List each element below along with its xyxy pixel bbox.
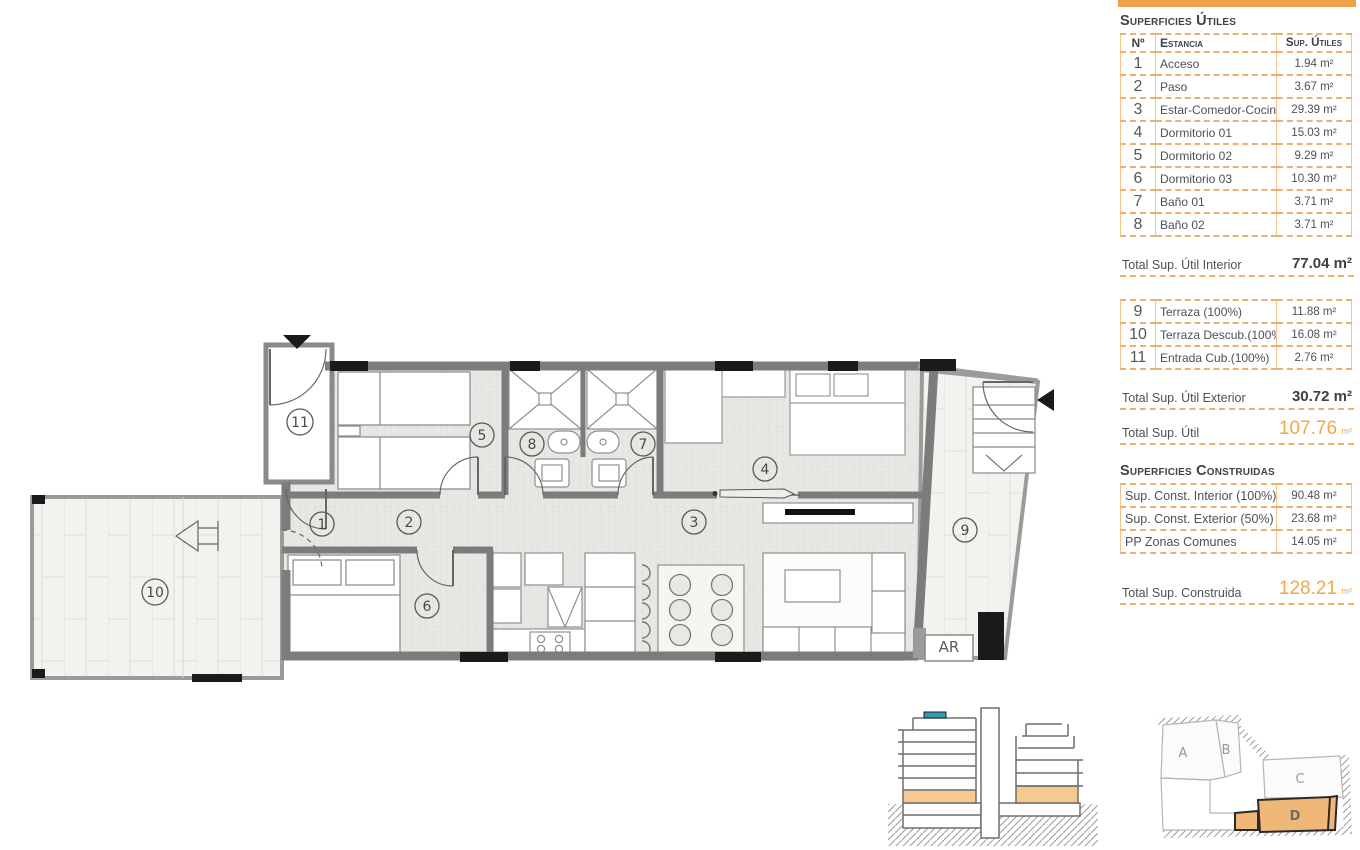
- svg-text:10: 10: [146, 585, 164, 601]
- col-area: Sup. Útiles: [1277, 34, 1352, 52]
- table-row: 9Terraza (100%)11.88 m²: [1121, 300, 1352, 323]
- table-row: 5Dormitorio 029.29 m²: [1121, 144, 1352, 167]
- table-row: 3Estar-Comedor-Cocina29.39 m²: [1121, 98, 1352, 121]
- built-areas-title: Superficies Construidas: [1120, 463, 1356, 479]
- table-row: 10Terraza Descub.(100%)16.08 m²: [1121, 323, 1352, 346]
- total-util: Total Sup. Útil 107.76 m²: [1120, 416, 1354, 445]
- block-c-label: C: [1295, 772, 1304, 787]
- svg-text:9: 9: [961, 523, 970, 539]
- left-tower: [898, 712, 976, 803]
- table-row: Sup. Const. Interior (100%)90.48 m²: [1121, 484, 1352, 507]
- block-d-annex: [1235, 811, 1258, 830]
- table-row: 4Dormitorio 0115.03 m²: [1121, 121, 1352, 144]
- area-summary-panel: Superficies Útiles Nº Estancia Sup. Útil…: [1118, 0, 1356, 605]
- bedroom-03-furniture: [288, 555, 400, 658]
- floor-plan-drawing: AR 1 2 3 4 5 6 7 8 9 10 11: [20, 325, 1060, 705]
- block-b-label: B: [1222, 743, 1231, 758]
- svg-text:6: 6: [423, 599, 432, 615]
- entrance-hall-11: [266, 345, 332, 482]
- floor-plan-sheet: AR 1 2 3 4 5 6 7 8 9 10 11: [0, 0, 1360, 850]
- svg-text:5: 5: [478, 428, 487, 444]
- table-row: 11Entrada Cub.(100%)2.76 m²: [1121, 346, 1352, 369]
- ar-unit: AR: [925, 635, 973, 661]
- neighbor-outline: [1161, 778, 1235, 830]
- svg-text:1: 1: [318, 517, 327, 533]
- building-section-diagram: [888, 700, 1098, 850]
- sliding-door: [713, 489, 801, 498]
- useful-areas-table: Nº Estancia Sup. Útiles 1Acceso1.94 m² 2…: [1120, 33, 1352, 237]
- block-a-label: A: [1179, 746, 1188, 761]
- svg-text:2: 2: [405, 515, 414, 531]
- right-tower: [1016, 724, 1083, 803]
- total-exterior: Total Sup. Útil Exterior 30.72 m²: [1120, 386, 1354, 410]
- table-row: 8Baño 023.71 m²: [1121, 213, 1352, 236]
- table-row: PP Zonas Comunes14.05 m²: [1121, 530, 1352, 553]
- built-areas-table: Sup. Const. Interior (100%)90.48 m² Sup.…: [1120, 483, 1352, 554]
- site-key-plan: A B C D: [1138, 710, 1358, 848]
- svg-text:11: 11: [291, 415, 309, 431]
- block-d-sliver: [1328, 796, 1337, 830]
- svg-text:8: 8: [528, 437, 537, 453]
- table-header-row: Nº Estancia Sup. Útiles: [1121, 34, 1352, 52]
- table-row: 7Baño 013.71 m²: [1121, 190, 1352, 213]
- svg-text:7: 7: [639, 437, 648, 453]
- svg-text:3: 3: [690, 515, 699, 531]
- accent-bar: [1118, 0, 1356, 7]
- ar-label: AR: [939, 638, 960, 656]
- table-row: 2Paso3.67 m²: [1121, 75, 1352, 98]
- dining-table: [658, 565, 744, 655]
- total-built: Total Sup. Construida 128.21 m²: [1120, 576, 1354, 605]
- exterior-areas-table: 9Terraza (100%)11.88 m² 10Terraza Descub…: [1120, 299, 1352, 370]
- total-interior: Total Sup. Útil Interior 77.04 m²: [1120, 253, 1354, 277]
- col-room: Estancia: [1156, 34, 1277, 52]
- useful-areas-title: Superficies Útiles: [1120, 13, 1356, 29]
- col-num: Nº: [1121, 34, 1156, 52]
- terrace-stairs: [973, 387, 1035, 473]
- block-a-shape: [1161, 720, 1225, 780]
- entrance-arrow-right: [1037, 389, 1054, 411]
- block-d-label: D: [1290, 809, 1301, 824]
- table-row: 1Acceso1.94 m²: [1121, 52, 1352, 75]
- table-row: Sup. Const. Exterior (50%)23.68 m²: [1121, 507, 1352, 530]
- table-row: 6Dormitorio 0310.30 m²: [1121, 167, 1352, 190]
- svg-text:4: 4: [761, 462, 770, 478]
